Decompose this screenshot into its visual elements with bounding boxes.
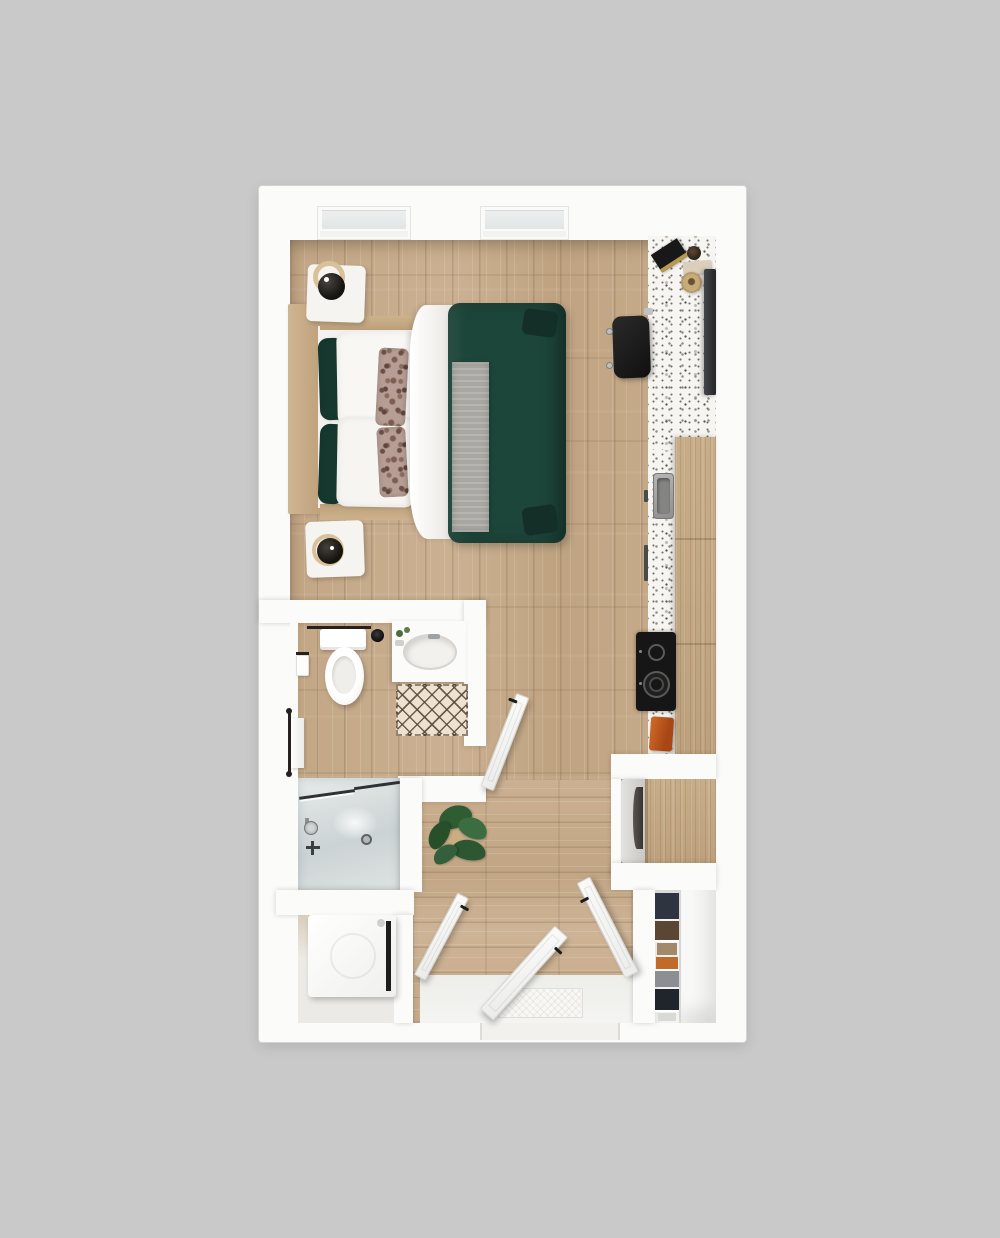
decor-basket-pot	[681, 272, 702, 293]
microwave-block-side	[611, 779, 621, 876]
closet-sliding-panel	[679, 890, 716, 1023]
window-right-sill	[483, 231, 566, 237]
toilet-bowl	[325, 647, 364, 705]
orange-dish-towel	[649, 716, 674, 752]
window-left-glass	[322, 210, 406, 229]
tall-cabinet	[675, 437, 716, 754]
cooktop-knob	[639, 650, 642, 653]
closet-interior	[655, 890, 716, 1023]
vanity-plant	[404, 627, 410, 633]
shower-valve-cross-v	[311, 841, 314, 855]
cooktop	[636, 632, 676, 711]
shower-drain	[361, 834, 372, 845]
lamp-lower-ball	[317, 538, 343, 564]
closet-shelf	[655, 1010, 679, 1012]
washer-drum-seam	[330, 933, 376, 979]
closet-clothes	[655, 921, 679, 941]
cooktop-knob	[639, 682, 642, 685]
closet-clothes	[655, 989, 679, 1011]
towel-rail-knob	[286, 771, 292, 777]
entry-threshold	[480, 1023, 620, 1040]
wall-tv	[704, 269, 716, 395]
closet-shoes	[658, 1013, 676, 1021]
potted-plant	[420, 804, 490, 872]
closet-clothes	[655, 893, 679, 919]
closet-shelf	[655, 940, 679, 942]
duvet-pillow-corner-top	[521, 308, 558, 338]
closet-wall-top	[611, 863, 716, 890]
vanity-counter	[392, 621, 466, 682]
door-stop-knob	[371, 629, 384, 642]
lamp-upper-highlight	[324, 277, 329, 282]
microwave-cabinet-top	[645, 779, 716, 863]
duvet-pillow-corner-bottom	[521, 504, 559, 536]
vanity-faucet	[428, 634, 440, 639]
window-right-glass	[485, 210, 564, 229]
headboard	[288, 304, 320, 514]
shower-head	[304, 821, 318, 835]
alcove-wall-top	[276, 890, 414, 915]
alcove-wall-right	[394, 915, 413, 1023]
kitchen-sink	[653, 473, 674, 519]
microwave-window	[633, 787, 643, 849]
burner-small	[648, 644, 665, 661]
bath-mat-diamond	[396, 684, 468, 736]
closet-clothes	[657, 943, 677, 955]
closet-clothes	[656, 957, 678, 969]
cabinet-handle	[644, 545, 648, 581]
washing-machine	[308, 915, 396, 997]
washer-door-slot	[386, 921, 391, 991]
window-right	[480, 206, 569, 240]
closet-clothes	[655, 971, 679, 987]
chair-caster	[606, 328, 613, 335]
cabinet-seam	[675, 643, 716, 645]
lamp-lower-highlight	[330, 546, 334, 550]
toilet-seat	[332, 656, 356, 694]
shower-reflection	[332, 806, 378, 840]
chair-caster	[606, 362, 613, 369]
cabinet-handle	[644, 490, 648, 502]
shower-wall-right	[400, 778, 422, 892]
sink-basin	[657, 478, 670, 514]
gray-throw-runner	[452, 362, 489, 532]
closet-shelf	[655, 969, 679, 971]
floor-plan-render	[0, 0, 1000, 1238]
microwave-door-glass	[621, 779, 645, 863]
towel-rail-knob	[286, 708, 292, 714]
vanity-plant	[396, 630, 403, 637]
window-left-sill	[320, 231, 408, 237]
kitchen-wall-mid	[611, 754, 716, 779]
pillow-accent-top	[375, 347, 409, 426]
vanity-basin	[403, 634, 457, 670]
cabinet-seam	[675, 538, 716, 540]
burner-large	[643, 671, 670, 698]
chair-arm-chrome	[644, 308, 653, 315]
pillow-accent-bottom	[376, 426, 409, 497]
lamp-upper-ball	[318, 273, 345, 300]
window-left	[317, 206, 411, 240]
toilet-paper-roll	[296, 655, 309, 676]
washer-knob	[377, 919, 385, 927]
vanity-soap	[395, 640, 404, 646]
closet-wall-left	[633, 890, 655, 1023]
decor-cup	[687, 246, 701, 260]
desk-chair	[612, 315, 651, 378]
hand-towel	[291, 718, 304, 768]
